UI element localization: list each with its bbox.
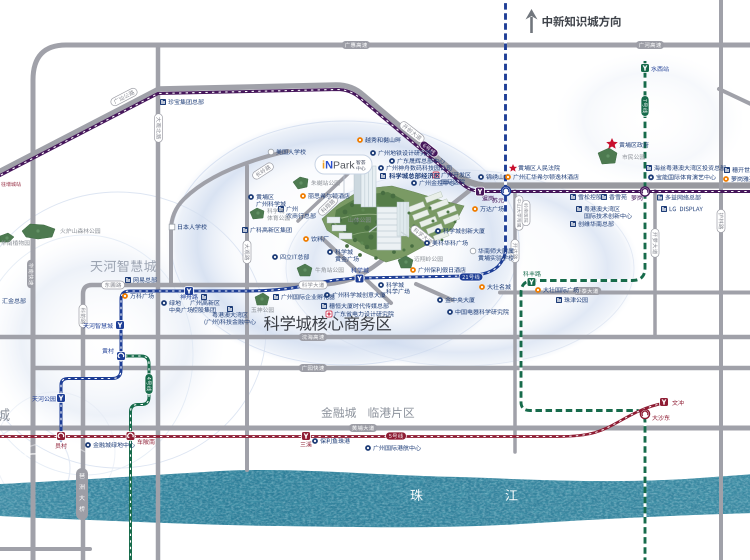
svg-text:iNPark: iNPark [322, 160, 355, 172]
